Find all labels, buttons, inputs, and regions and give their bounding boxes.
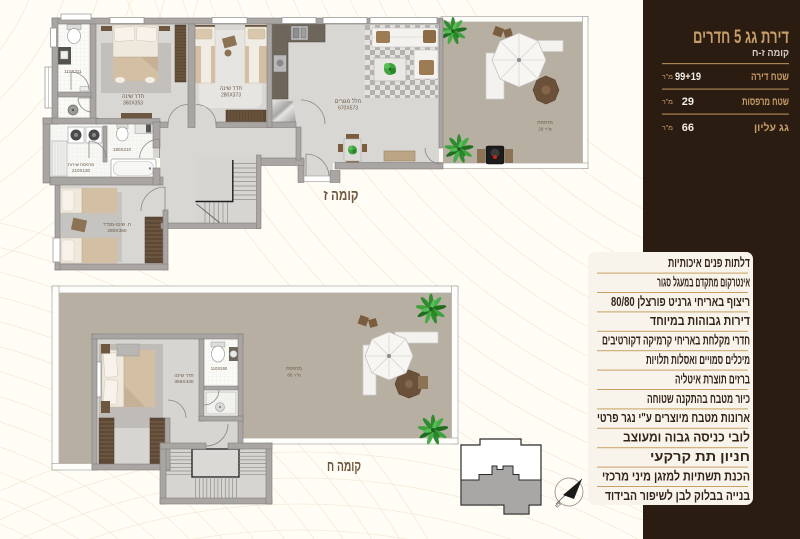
svg-text:דירת גג 5 חדרים: דירת גג 5 חדרים (693, 27, 789, 48)
svg-text:מרפסת: מרפסת (537, 120, 553, 126)
svg-text:חדר שינה: חדר שינה (174, 374, 193, 379)
svg-text:280X373: 280X373 (221, 93, 241, 99)
svg-text:180X210: 180X210 (113, 147, 132, 152)
svg-text:הכנת תשתיות למזגן מיני מרכזי: הכנת תשתיות למזגן מיני מרכזי (602, 468, 750, 483)
svg-text:360X353: 360X353 (123, 101, 143, 107)
svg-text:לובי כניסה גבוה ומעוצב: לובי כניסה גבוה ומעוצב (623, 430, 750, 445)
svg-text:29 מ"ר: 29 מ"ר (538, 127, 551, 132)
svg-text:קומה ח: קומה ח (327, 458, 361, 475)
svg-text:חניון תת קרקעי: חניון תת קרקעי (650, 449, 750, 464)
svg-text:חדרי מקלחת באריחי קרמיקה דקורט: חדרי מקלחת באריחי קרמיקה דקורטיבים (602, 333, 750, 348)
svg-text:355X430: 355X430 (174, 379, 194, 385)
svg-text:ח. שינה-ממ"ד: ח. שינה-ממ"ד (103, 222, 131, 228)
svg-text:כיור מטבח בהתקנה שטוחה: כיור מטבח בהתקנה שטוחה (647, 391, 750, 406)
svg-text:ארונות מטבח מיוצרים ע"י נגר פר: ארונות מטבח מיוצרים ע"י נגר פרטי (597, 410, 750, 425)
svg-text:66: 66 (682, 122, 694, 134)
svg-text:110X260: 110X260 (211, 366, 228, 371)
svg-text:חדר שינה: חדר שינה (122, 94, 145, 100)
svg-text:99+19: 99+19 (675, 71, 701, 83)
svg-text:דלתות פנים איכותיות: דלתות פנים איכותיות (668, 255, 750, 270)
svg-text:מ"ר: מ"ר (662, 99, 673, 106)
svg-text:110X311: 110X311 (64, 69, 82, 74)
svg-text:דירות גבוהות במיוחד: דירות גבוהות במיוחד (650, 313, 750, 328)
svg-text:280X360: 280X360 (107, 228, 127, 234)
svg-text:מרפסת: מרפסת (286, 366, 302, 372)
svg-text:210X130: 210X130 (72, 168, 91, 173)
svg-text:מרפסת שירות: מרפסת שירות (68, 162, 95, 167)
svg-text:66 מ"ר: 66 מ"ר (287, 373, 300, 378)
svg-text:מיכלים סמויים ואסלות תלויות: מיכלים סמויים ואסלות תלויות (646, 352, 750, 367)
svg-text:29: 29 (682, 96, 694, 108)
svg-text:חדר שינה: חדר שינה (220, 86, 243, 92)
svg-text:קומה ז-ח: קומה ז-ח (752, 48, 789, 59)
svg-text:670X573: 670X573 (338, 106, 358, 112)
svg-text:גג עליון: גג עליון (754, 121, 789, 134)
svg-text:ריצוף באריחי גרניט פורצלן 80/8: ריצוף באריחי גרניט פורצלן 80/80 (611, 294, 750, 309)
svg-text:שטח דירה: שטח דירה (751, 71, 789, 83)
svg-text:מ"ר: מ"ר (662, 125, 673, 132)
svg-text:ברזים תוצרת איטליה: ברזים תוצרת איטליה (675, 371, 750, 386)
svg-text:קומה ז: קומה ז (324, 187, 359, 204)
svg-text:בנייה בבלוק לבן לשיפור הבידוד: בנייה בבלוק לבן לשיפור הבידוד (605, 488, 750, 503)
svg-text:חלל מגורים: חלל מגורים (335, 98, 362, 105)
svg-text:מ"ר: מ"ר (662, 74, 673, 81)
svg-text:אינטרקום מתקדם במעגל סגור: אינטרקום מתקדם במעגל סגור (657, 274, 750, 289)
svg-text:שטח מרפסות: שטח מרפסות (742, 96, 789, 108)
